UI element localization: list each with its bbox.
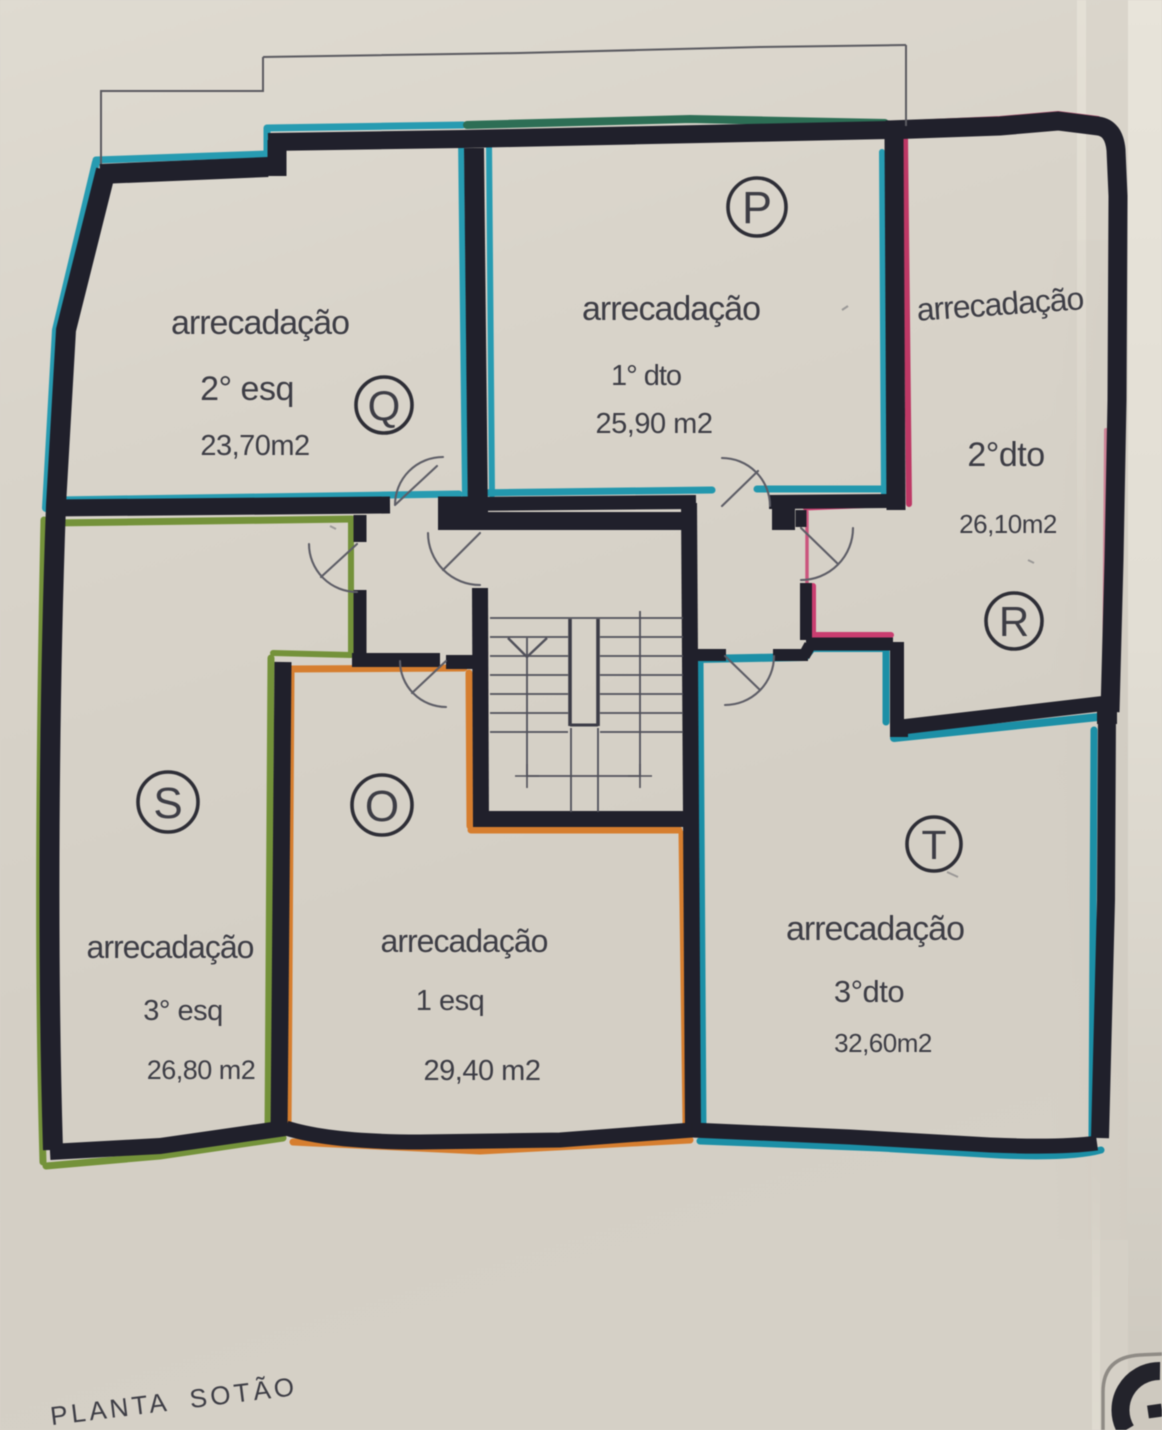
- svg-text:2° esq: 2° esq: [200, 370, 294, 408]
- svg-text:O: O: [365, 782, 399, 831]
- svg-text:26,10m2: 26,10m2: [959, 509, 1057, 539]
- svg-text:arrecadação: arrecadação: [582, 290, 760, 328]
- svg-text:P: P: [742, 182, 772, 233]
- svg-text:arrecadação: arrecadação: [87, 929, 254, 965]
- svg-text:Q: Q: [368, 382, 401, 429]
- svg-text:R: R: [999, 598, 1029, 645]
- svg-text:T: T: [921, 822, 946, 868]
- svg-text:26,80 m2: 26,80 m2: [147, 1055, 256, 1085]
- svg-text:S: S: [153, 779, 182, 828]
- svg-text:2°dto: 2°dto: [967, 436, 1044, 474]
- svg-text:3° esq: 3° esq: [143, 995, 223, 1027]
- svg-text:1 esq: 1 esq: [416, 985, 484, 1017]
- svg-text:32,60m2: 32,60m2: [834, 1028, 932, 1058]
- svg-text:25,90 m2: 25,90 m2: [596, 408, 713, 440]
- svg-text:arrecadação: arrecadação: [786, 910, 964, 948]
- svg-text:3°dto: 3°dto: [834, 974, 904, 1009]
- svg-text:arrecadação: arrecadação: [381, 923, 548, 959]
- svg-text:1° dto: 1° dto: [611, 360, 681, 392]
- svg-text:arrecadação: arrecadação: [171, 304, 349, 342]
- svg-text:23,70m2: 23,70m2: [200, 430, 309, 462]
- svg-text:29,40 m2: 29,40 m2: [424, 1055, 541, 1087]
